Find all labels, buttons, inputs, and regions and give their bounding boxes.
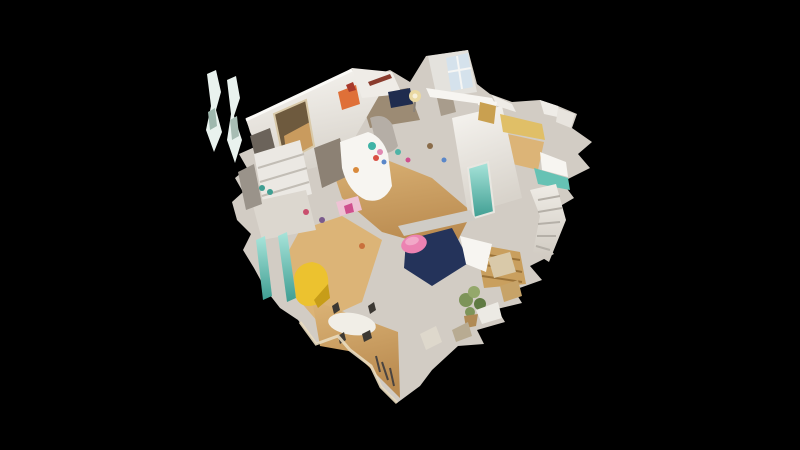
clutter-dot — [406, 158, 411, 163]
dollhouse-model[interactable] — [0, 0, 800, 450]
clutter-dot — [427, 143, 433, 149]
clutter-dot — [395, 149, 401, 155]
plant-foliage — [468, 286, 480, 298]
lamp-stand — [414, 102, 415, 112]
ornament-dot — [382, 160, 387, 165]
kitchen-teal-item — [267, 189, 273, 195]
kitchen-teal-item — [259, 185, 265, 191]
clutter-dot — [359, 243, 365, 249]
clutter-dot — [353, 167, 359, 173]
clutter-dot — [319, 217, 325, 223]
clutter-dot — [303, 209, 309, 215]
ornament-dot — [368, 142, 376, 150]
ornament-dot — [373, 155, 379, 161]
clutter-dot — [442, 158, 447, 163]
lamp-bulb — [413, 94, 418, 99]
viewer-canvas[interactable] — [0, 0, 800, 450]
ornament-dot — [377, 149, 383, 155]
